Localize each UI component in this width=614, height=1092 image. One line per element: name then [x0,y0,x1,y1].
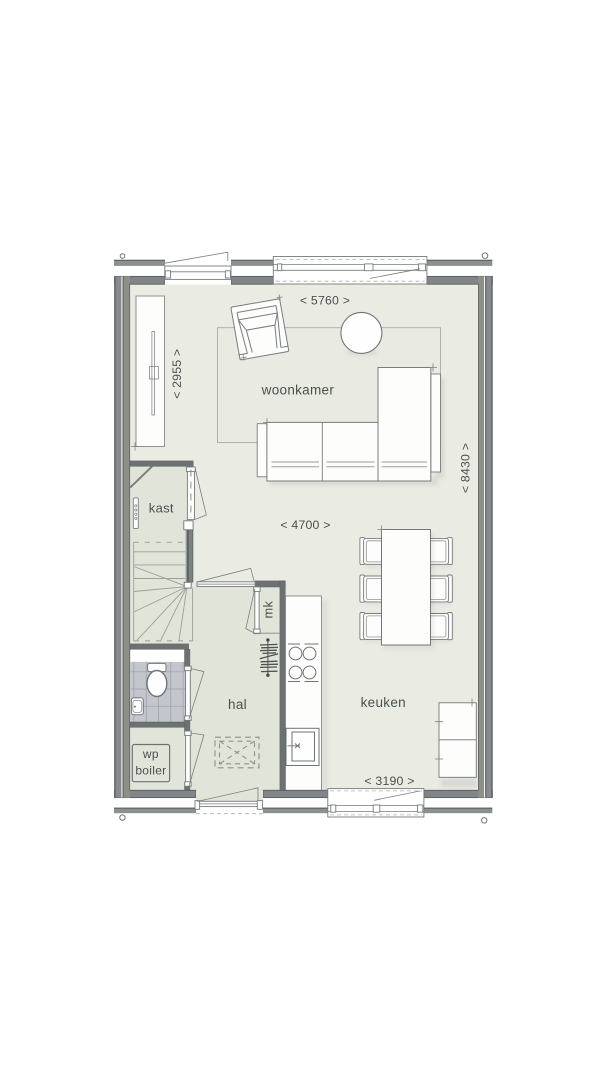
svg-text:wp: wp [142,747,159,761]
svg-text:kast: kast [149,501,174,516]
svg-text:< 5760 >: < 5760 > [300,294,350,308]
svg-text:woonkamer: woonkamer [261,383,335,398]
svg-text:< 2955 >: < 2955 > [170,349,184,399]
svg-text:< 3190 >: < 3190 > [364,774,414,788]
svg-text:< 4700 >: < 4700 > [280,518,330,532]
svg-text:boiler: boiler [135,764,166,778]
svg-text:mk: mk [260,600,275,618]
svg-text:keuken: keuken [361,695,406,710]
svg-text:hal: hal [228,697,247,712]
svg-text:< 8430 >: < 8430 > [458,443,472,493]
